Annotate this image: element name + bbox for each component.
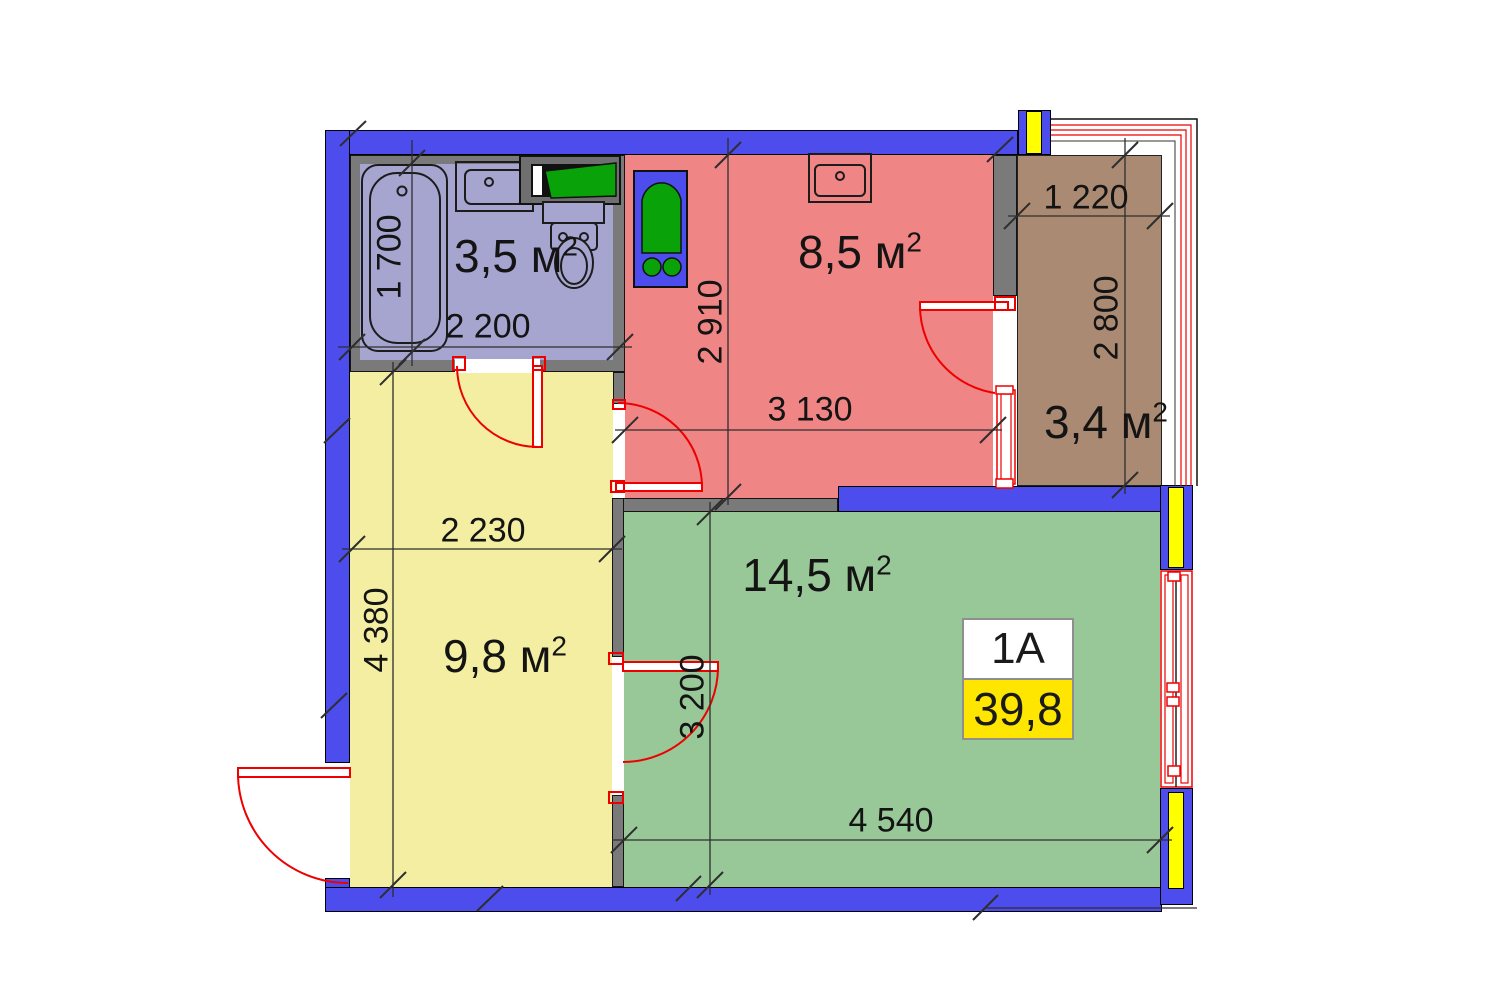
living-area-sup: 2 (876, 550, 892, 581)
unit-number: 1A (964, 620, 1072, 680)
washing-machine-icon (520, 156, 620, 204)
dim-living-width: 4 540 (848, 802, 933, 841)
dim-living-depth: 3 200 (674, 654, 713, 739)
balcony-area-text: 3,4 м (1044, 396, 1152, 448)
dim-hallway-depth: 4 380 (358, 587, 397, 672)
kitchen-door (611, 400, 702, 492)
dim-bathroom-width: 2 200 (445, 308, 530, 347)
kitchen-sink-icon (809, 154, 871, 202)
hallway-area-text: 9,8 м (443, 630, 551, 682)
kitchen-window (995, 386, 1017, 488)
balcony-area-sup: 2 (1152, 397, 1168, 428)
room-label-living: 14,5 м2 (742, 548, 892, 602)
dim-bathtub-length: 1 700 (371, 214, 410, 299)
room-label-bathroom: 3,5 м2 (454, 229, 578, 283)
dim-balcony-width: 1 220 (1043, 179, 1128, 218)
dim-balcony-depth: 2 800 (1088, 275, 1127, 360)
balcony-door (920, 297, 1015, 394)
living-room-window (1160, 570, 1193, 788)
stove-icon (634, 171, 687, 287)
unit-badge: 1A 39,8 (962, 618, 1074, 740)
dim-hallway-width: 2 230 (440, 512, 525, 551)
hallway-area-sup: 2 (551, 631, 567, 662)
plan-linework (0, 0, 1500, 1000)
bathroom-area-text: 3,5 м (454, 230, 562, 282)
entrance-door (238, 768, 350, 883)
floor-plan: 3,5 м2 8,5 м2 3,4 м2 9,8 м2 14,5 м2 1 70… (0, 0, 1500, 1000)
room-label-balcony: 3,4 м2 (1044, 395, 1168, 449)
dim-kitchen-width: 3 130 (767, 391, 852, 430)
room-label-hallway: 9,8 м2 (443, 629, 567, 683)
kitchen-area-text: 8,5 м (798, 226, 906, 278)
bathroom-door (453, 357, 545, 447)
bathroom-area-sup: 2 (562, 231, 578, 262)
room-label-kitchen: 8,5 м2 (798, 225, 922, 279)
unit-total-area: 39,8 (964, 680, 1072, 738)
dim-kitchen-depth: 2 910 (692, 279, 731, 364)
kitchen-area-sup: 2 (906, 227, 922, 258)
living-area-text: 14,5 м (742, 549, 876, 601)
